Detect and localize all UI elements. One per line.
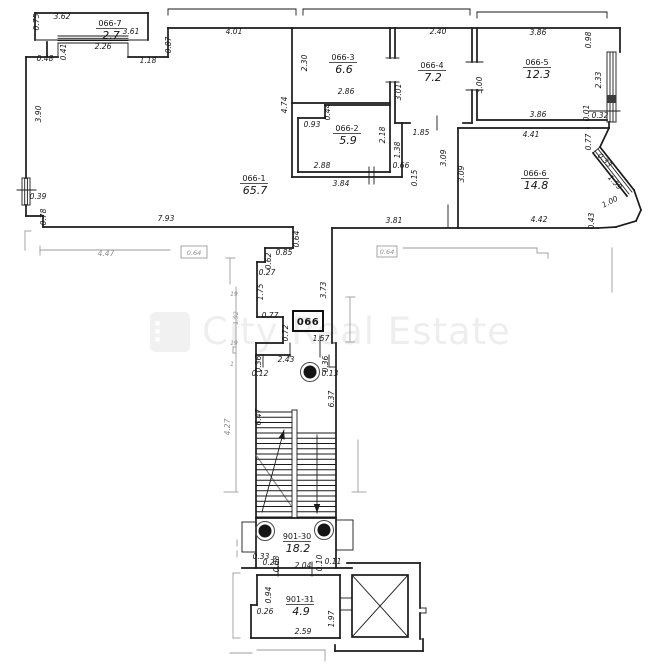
dimension-label: 0.15 xyxy=(410,169,419,186)
dimension-label: 0.64 xyxy=(187,249,201,257)
dimension-label: 4.47 xyxy=(98,249,115,258)
room-code: 066-2 xyxy=(335,124,358,133)
dimension-label: 0.66 xyxy=(393,161,410,170)
dimension-label: 0.26 xyxy=(257,607,274,616)
room-area: 14.8 xyxy=(524,179,549,192)
dimension-label: 0.41 xyxy=(59,44,68,61)
dimension-label: 1.00 xyxy=(600,194,619,210)
dimension-label: 3.86 xyxy=(530,28,547,37)
room-code: 066-1 xyxy=(242,174,265,183)
room-code: 066-5 xyxy=(525,58,548,67)
dimension-label: 2.59 xyxy=(295,627,312,636)
dimension-label: 4.42 xyxy=(531,215,548,224)
dimension-label: 3.09 xyxy=(439,149,448,166)
unit-number-label: 066 xyxy=(297,317,319,328)
dimension-label: 0.08 xyxy=(272,555,281,572)
room-label-901-30: 901-3018.2 xyxy=(283,532,311,555)
dimension-label: 1.38 xyxy=(393,141,402,158)
dimension-label: 0.11 xyxy=(325,557,342,566)
dimension-label: 6.37 xyxy=(327,390,336,407)
dimension-label: 1 xyxy=(230,361,234,368)
stair-direction-arrow xyxy=(279,430,285,440)
dimension-label: 1.85 xyxy=(413,128,430,137)
dimension-label: 1.75 xyxy=(256,283,265,300)
room-area: 7.2 xyxy=(424,71,442,84)
dimension-label: 3.61 xyxy=(123,27,140,36)
dimension-label: 1.92 xyxy=(233,311,240,325)
room-label-066-4: 066-47.2 xyxy=(418,61,446,84)
dimension-label: 0.77 xyxy=(262,311,279,320)
dimension-label: 0.72 xyxy=(281,324,290,341)
dimension-label: 0.98 xyxy=(584,31,593,48)
dimension-label: 0.87 xyxy=(164,36,173,53)
dimension-label: 4.74 xyxy=(280,96,289,113)
dimension-label: 0.85 xyxy=(276,248,293,257)
dimension-label: 3.01 xyxy=(394,84,403,101)
room-area: 5.9 xyxy=(339,134,357,147)
dimension-label: 0.27 xyxy=(259,268,276,277)
dimension-label: 3.90 xyxy=(34,105,43,122)
room-area: 18.2 xyxy=(286,542,311,555)
dimension-label: 6.47 xyxy=(254,408,263,425)
dimension-label: 0.43 xyxy=(587,212,596,229)
room-code: 066-4 xyxy=(420,61,443,70)
dimension-label: 0.01 xyxy=(582,105,591,122)
dimension-label: 0.10 xyxy=(315,554,324,571)
floor-plan-drawing: 3.620.753.612.260.410.481.180.874.013.90… xyxy=(0,0,660,670)
room-label-066-6: 066-614.8 xyxy=(521,169,549,192)
dimension-label: 0.75 xyxy=(32,13,41,30)
dimension-label: 0.93 xyxy=(304,120,321,129)
dimension-label: 0.48 xyxy=(37,54,54,63)
dimension-label: 1.18 xyxy=(140,56,157,65)
room-area: 12.3 xyxy=(526,68,551,81)
room-code: 066-6 xyxy=(523,169,546,178)
dimension-label: 3.62 xyxy=(54,12,71,21)
room-code: 901-31 xyxy=(286,595,314,604)
dimension-label: 7.93 xyxy=(158,214,175,223)
dimension-label: 0.94 xyxy=(264,586,273,603)
dimension-label: 3.81 xyxy=(386,216,403,225)
dimension-label: 2.86 xyxy=(338,87,355,96)
dimension-label: 4.27 xyxy=(223,418,232,435)
dimension-label: 0.62 xyxy=(264,252,273,269)
dimension-label: 2.18 xyxy=(378,126,387,143)
dimension-label: 19 xyxy=(230,291,238,298)
dimension-label: 3.09 xyxy=(457,165,466,182)
dimension-label: 2.33 xyxy=(594,71,603,88)
dimension-label: 3.86 xyxy=(530,110,547,119)
room-code: 066-3 xyxy=(331,53,354,62)
room-area: 65.7 xyxy=(243,184,268,197)
dimension-label: 2.40 xyxy=(430,27,447,36)
dimension-label: 0.77 xyxy=(584,133,593,150)
dimension-label: 2.26 xyxy=(95,42,112,51)
room-area: 4.9 xyxy=(292,605,310,618)
room-area: 2.7 xyxy=(102,29,120,42)
dimension-label: 4.01 xyxy=(226,27,243,36)
room-label-066-3: 066-36.6 xyxy=(329,53,357,76)
dimension-label: 0.64 xyxy=(380,248,394,256)
dimension-label: 0.78 xyxy=(39,208,48,225)
dimension-label: 3.00 xyxy=(475,76,484,93)
dimension-label: 2.88 xyxy=(314,161,331,170)
dimension-label: 0.12 xyxy=(252,369,269,378)
labels-layer: 3.620.753.612.260.410.481.180.874.013.90… xyxy=(30,12,624,636)
dimension-label: 2.43 xyxy=(278,355,295,364)
dimension-label: 0.39 xyxy=(30,192,47,201)
dimension-label: 2.04 xyxy=(295,561,312,570)
dimension-label: 1.57 xyxy=(313,334,330,343)
dimension-label: 2.30 xyxy=(300,54,309,71)
floor-plan: City Real Estate 3.620.753.612.260.410.4… xyxy=(0,0,660,670)
dimension-label: 1.97 xyxy=(327,610,336,627)
room-code: 901-30 xyxy=(283,532,311,541)
room-label-066-1: 066-165.7 xyxy=(240,174,268,197)
room-label-066-2: 066-25.9 xyxy=(333,124,361,147)
dimension-label: 0.32 xyxy=(592,111,609,120)
room-label-066-5: 066-512.3 xyxy=(523,58,551,81)
dimension-label: 3.84 xyxy=(333,179,350,188)
room-label-901-31: 901-314.9 xyxy=(286,595,314,618)
dimension-label: 0.44 xyxy=(323,103,332,120)
dimension-label: 0.13 xyxy=(322,369,339,378)
dimension-label: 19 xyxy=(230,340,238,347)
dimension-label: 0.64 xyxy=(292,230,301,247)
dimension-label: 4.41 xyxy=(523,130,540,139)
room-code: 066-7 xyxy=(98,19,121,28)
room-area: 6.6 xyxy=(335,63,353,76)
dimension-label: 3.73 xyxy=(319,281,328,298)
